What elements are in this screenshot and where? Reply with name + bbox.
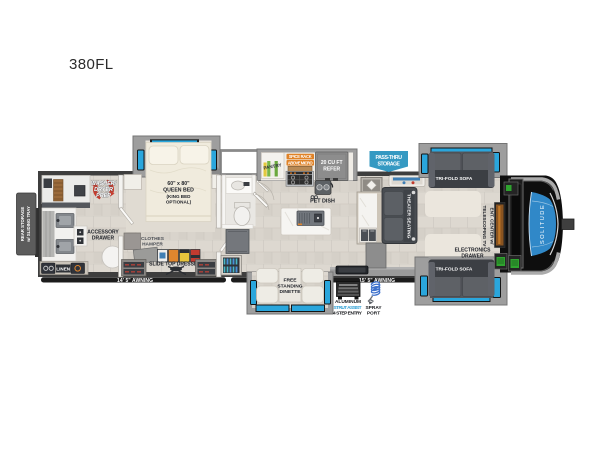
- svg-text:SPRAY: SPRAY: [365, 305, 382, 311]
- svg-text:TRI-FOLD SOFA: TRI-FOLD SOFA: [436, 176, 473, 182]
- svg-text:CLOTHES: CLOTHES: [141, 236, 165, 242]
- svg-text:REAR STORAGE: REAR STORAGE: [20, 207, 25, 242]
- svg-text:ABOVE MICRO: ABOVE MICRO: [288, 160, 314, 165]
- svg-text:15' 5" AWNING: 15' 5" AWNING: [359, 278, 395, 284]
- svg-text:SPICE RACK: SPICE RACK: [289, 154, 312, 159]
- svg-text:PET DISH: PET DISH: [310, 199, 335, 205]
- svg-text:DRAWER: DRAWER: [461, 254, 484, 260]
- svg-text:w/ SLIDING TRAY: w/ SLIDING TRAY: [26, 206, 31, 243]
- svg-text:REFER: REFER: [323, 167, 340, 173]
- svg-text:ENT. CENTER w/: ENT. CENTER w/: [490, 208, 495, 246]
- svg-text:60" x 80": 60" x 80": [167, 181, 190, 187]
- svg-text:SLIDE TOP DRESSER: SLIDE TOP DRESSER: [149, 261, 201, 267]
- svg-text:STRUT ASSIST: STRUT ASSIST: [334, 305, 362, 311]
- svg-text:QUEEN BED: QUEEN BED: [163, 188, 194, 194]
- svg-text:(KING BED: (KING BED: [167, 194, 192, 199]
- svg-text:TELESCOPING TV: TELESCOPING TV: [482, 206, 487, 248]
- svg-text:STANDING: STANDING: [277, 283, 302, 289]
- svg-text:PREP: PREP: [96, 193, 111, 199]
- svg-text:4 STEP ENTRY: 4 STEP ENTRY: [333, 310, 363, 316]
- svg-text:OPTIONAL): OPTIONAL): [166, 200, 192, 205]
- svg-text:ALUMINUM: ALUMINUM: [335, 299, 361, 305]
- svg-text:14' 5" AWNING: 14' 5" AWNING: [117, 278, 153, 284]
- svg-text:PORT: PORT: [367, 310, 380, 316]
- svg-text:LINEN: LINEN: [56, 267, 70, 272]
- svg-text:DRAWER: DRAWER: [92, 236, 115, 242]
- svg-text:PASS-THRU: PASS-THRU: [375, 155, 402, 161]
- svg-text:THEATER SEATING: THEATER SEATING: [406, 194, 412, 239]
- svg-text:FREE: FREE: [283, 278, 297, 284]
- svg-text:DINETTE: DINETTE: [280, 289, 302, 295]
- svg-text:HAMPER: HAMPER: [142, 242, 163, 248]
- svg-text:SOLITUDE: SOLITUDE: [540, 204, 546, 244]
- svg-text:380FL: 380FL: [69, 56, 114, 73]
- svg-text:20 CU FT: 20 CU FT: [321, 160, 343, 166]
- svg-text:TRI-FOLD SOFA: TRI-FOLD SOFA: [436, 267, 473, 273]
- svg-text:STORAGE: STORAGE: [377, 162, 400, 168]
